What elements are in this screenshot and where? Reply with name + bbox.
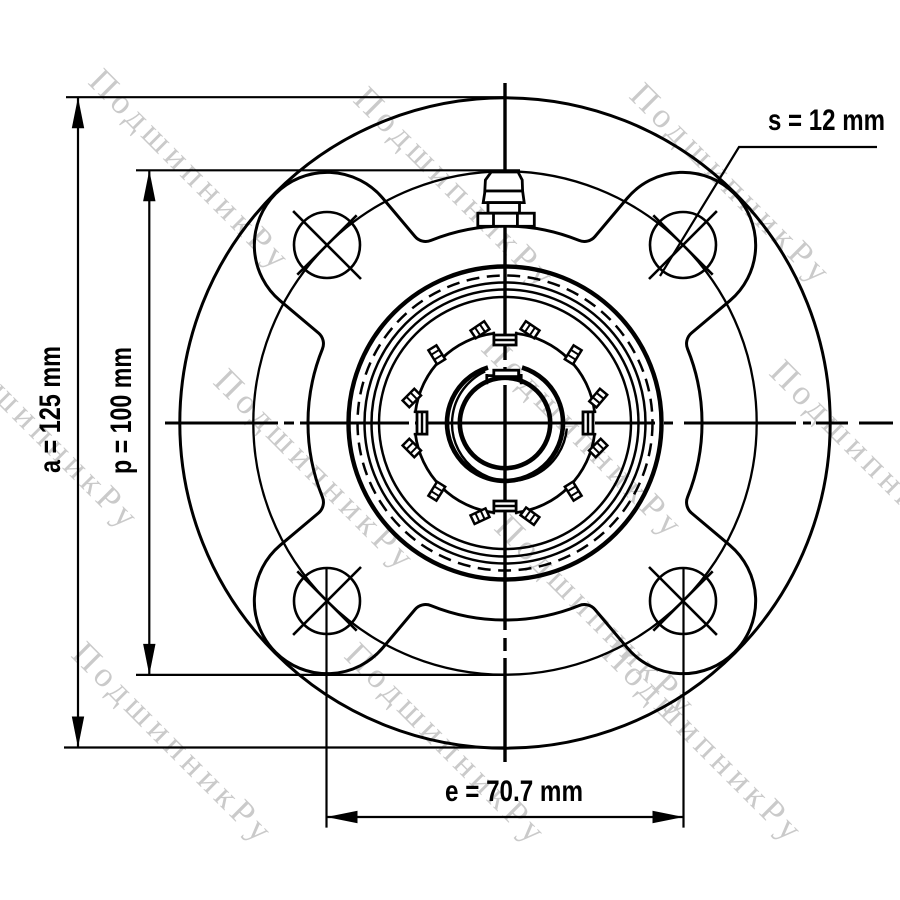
- svg-text:s = 12 mm: s = 12 mm: [768, 104, 885, 137]
- svg-text:a = 125 mm: a = 125 mm: [34, 346, 67, 473]
- svg-text:p = 100 mm: p = 100 mm: [105, 347, 138, 474]
- svg-text:e = 70.7 mm: e = 70.7 mm: [445, 775, 583, 808]
